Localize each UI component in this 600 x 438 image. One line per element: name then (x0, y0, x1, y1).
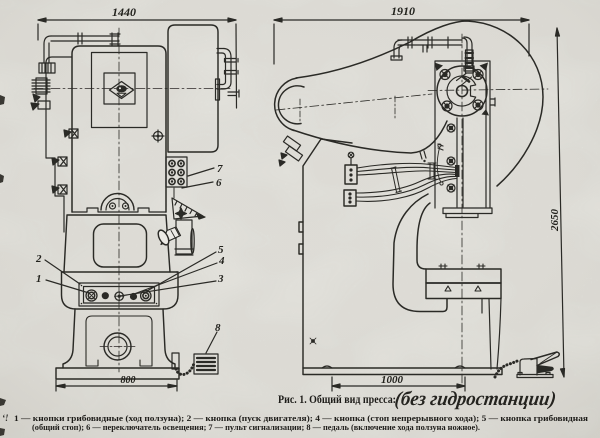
svg-text:(общий стоп); 6 — переключател: (общий стоп); 6 — переключатель освещени… (32, 422, 480, 432)
svg-text:3: 3 (217, 273, 224, 285)
svg-text:800: 800 (121, 375, 136, 386)
svg-text:4: 4 (218, 255, 225, 267)
svg-text:1: 1 (36, 273, 42, 285)
svg-text:2: 2 (35, 253, 42, 265)
svg-text:(без гидростанции): (без гидростанции) (393, 388, 557, 410)
svg-text:1910: 1910 (391, 4, 415, 18)
svg-text:1440: 1440 (112, 5, 136, 19)
svg-text:7: 7 (217, 163, 223, 175)
svg-text:1000: 1000 (381, 374, 404, 386)
svg-text:Рис. 1. Общий вид пресса:: Рис. 1. Общий вид пресса: (278, 394, 396, 406)
svg-text:8: 8 (215, 322, 221, 334)
svg-text:6: 6 (216, 177, 222, 189)
svg-text:2650: 2650 (549, 209, 561, 233)
svg-text:‘!: ‘! (2, 413, 9, 423)
